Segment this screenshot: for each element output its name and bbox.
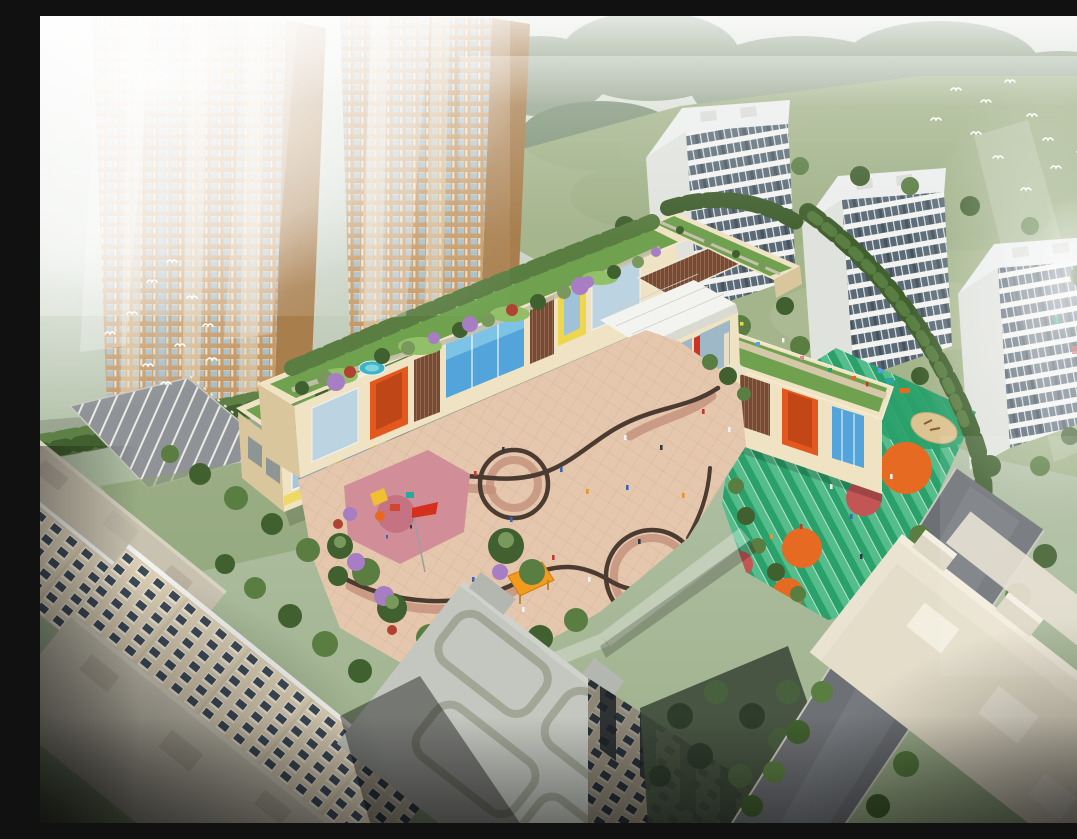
aerial-render [40,16,1077,823]
render-canvas [40,16,1077,823]
